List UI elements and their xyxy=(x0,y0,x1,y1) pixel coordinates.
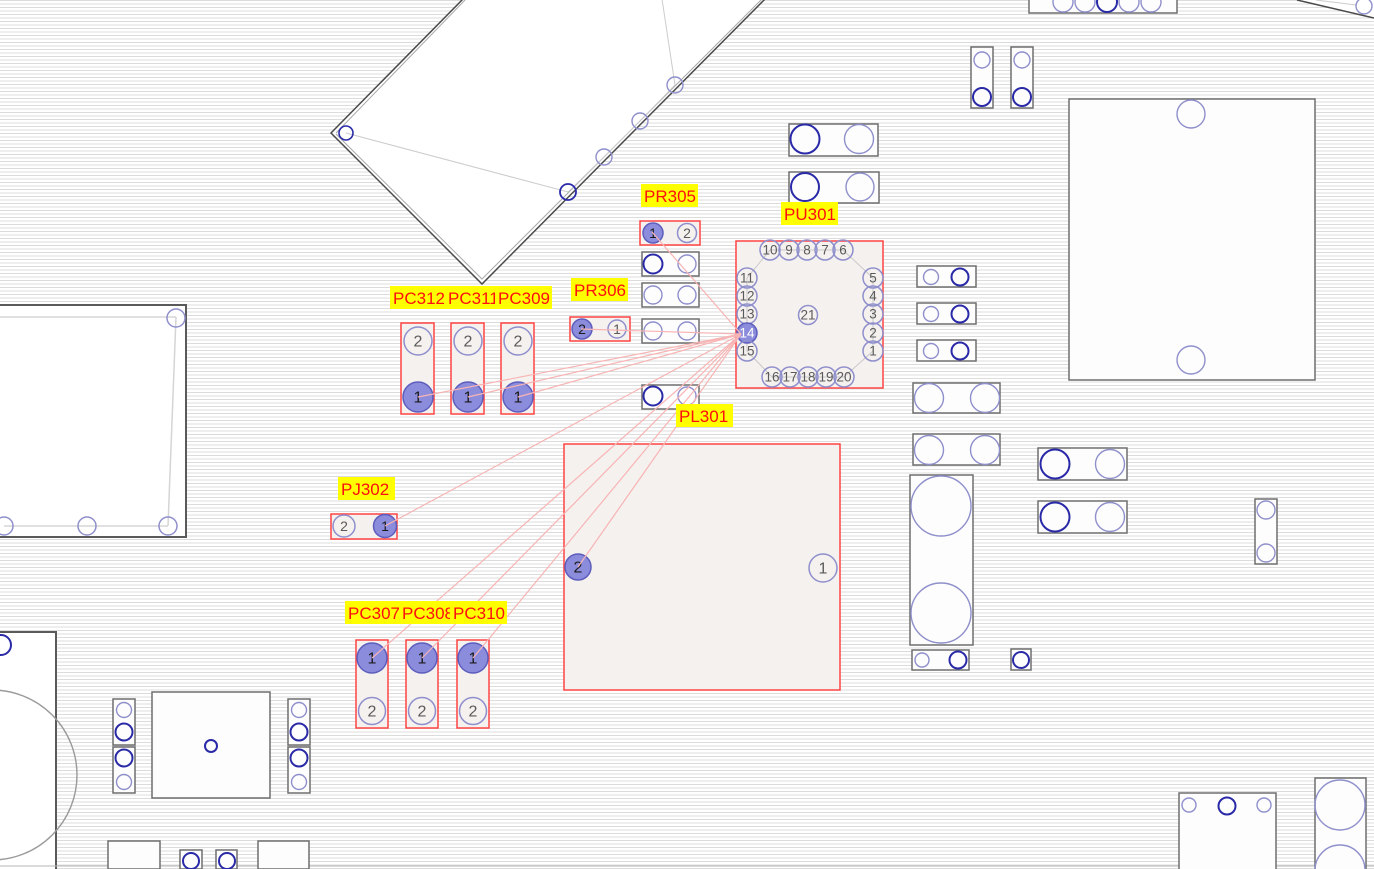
component[interactable] xyxy=(642,252,699,276)
pad-number: 20 xyxy=(836,370,851,385)
component-body[interactable] xyxy=(1038,501,1127,533)
pad-number: 9 xyxy=(785,243,793,258)
component[interactable] xyxy=(113,699,135,745)
component-PR305[interactable]: 12 xyxy=(640,221,700,245)
component[interactable] xyxy=(216,850,237,869)
component[interactable] xyxy=(910,475,973,645)
component-PC309[interactable]: 21 xyxy=(501,323,534,414)
component-body[interactable] xyxy=(288,699,310,745)
label-text: PC312 xyxy=(393,289,445,308)
component[interactable] xyxy=(789,124,878,156)
component-PC311[interactable]: 21 xyxy=(451,323,484,414)
pad-number: 3 xyxy=(869,307,877,322)
pad-number: 7 xyxy=(821,243,829,258)
pad-number: 21 xyxy=(800,308,815,323)
refdes-label-PC311[interactable]: PC311 xyxy=(445,286,502,309)
pad-number: 14 xyxy=(739,326,755,341)
pad-number: 1 xyxy=(613,321,621,337)
component[interactable] xyxy=(258,841,309,869)
component[interactable] xyxy=(1315,778,1366,869)
component-body[interactable] xyxy=(913,383,1000,413)
component-PC312[interactable]: 21 xyxy=(401,323,434,414)
pad-number: 18 xyxy=(800,370,815,385)
pad-number: 2 xyxy=(683,225,691,241)
component[interactable] xyxy=(1029,0,1177,13)
pad-number: 1 xyxy=(869,344,877,359)
label-text: PR306 xyxy=(574,281,626,300)
component-PC307[interactable]: 12 xyxy=(356,640,388,728)
pad-number: 1 xyxy=(514,390,523,407)
component-body[interactable] xyxy=(258,841,309,869)
pad-number: 2 xyxy=(869,326,877,341)
component-body[interactable] xyxy=(113,699,135,745)
label-text: PR305 xyxy=(644,187,696,206)
component-body[interactable] xyxy=(789,124,878,156)
component-body[interactable] xyxy=(1179,793,1276,869)
component-PC310[interactable]: 12 xyxy=(457,640,489,728)
component[interactable] xyxy=(913,434,1000,465)
pad-number: 17 xyxy=(782,370,797,385)
label-text: PL301 xyxy=(679,407,728,426)
component[interactable] xyxy=(180,850,202,869)
pad-number: 1 xyxy=(464,390,473,407)
bottom-left-module-outline xyxy=(0,632,56,869)
component-PC308[interactable]: 12 xyxy=(406,640,438,728)
pad-number: 11 xyxy=(740,271,754,286)
component[interactable] xyxy=(108,841,160,869)
refdes-label-PJ302[interactable]: PJ302 xyxy=(338,477,395,500)
component[interactable] xyxy=(113,747,135,793)
component-body[interactable] xyxy=(152,692,270,798)
pad-number: 8 xyxy=(803,243,811,258)
refdes-label-PC308[interactable]: PC308 xyxy=(399,601,456,624)
component[interactable] xyxy=(912,650,969,670)
label-text: PC309 xyxy=(498,289,550,308)
label-text: PC310 xyxy=(453,604,505,623)
pad-number: 2 xyxy=(464,334,473,351)
pcb-viewport: 1221212121211212122110987611121314155432… xyxy=(0,0,1374,869)
component-body[interactable] xyxy=(1038,448,1127,480)
pad-number: 2 xyxy=(469,704,478,721)
component[interactable] xyxy=(152,692,270,798)
component-body[interactable] xyxy=(1255,499,1277,564)
component-body[interactable] xyxy=(1069,99,1315,380)
component[interactable] xyxy=(1179,793,1276,869)
component[interactable] xyxy=(642,283,699,307)
refdes-label-PU301[interactable]: PU301 xyxy=(781,202,838,225)
pad-number: 4 xyxy=(869,289,877,304)
refdes-label-PC312[interactable]: PC312 xyxy=(390,286,447,309)
component-body[interactable] xyxy=(917,266,976,287)
pad-number: 2 xyxy=(514,334,523,351)
ratsnest-line xyxy=(518,334,741,397)
pad-number: 10 xyxy=(762,243,777,258)
component-body[interactable] xyxy=(564,444,840,690)
refdes-label-PC307[interactable]: PC307 xyxy=(345,601,402,624)
label-text: PU301 xyxy=(784,205,836,224)
pad-number: 1 xyxy=(469,651,478,668)
pad-number: 13 xyxy=(739,307,754,322)
pad-number: 15 xyxy=(739,344,754,359)
pad-number: 2 xyxy=(418,704,427,721)
pad-number: 1 xyxy=(414,390,423,407)
pad-number: 16 xyxy=(764,370,779,385)
component-body[interactable] xyxy=(917,303,976,324)
pad-number: 2 xyxy=(340,518,348,534)
pad-number: 1 xyxy=(418,651,427,668)
component-PU301[interactable]: 109876111213141554321161718192021 xyxy=(736,240,883,388)
pad-number: 5 xyxy=(869,271,877,286)
component-body[interactable] xyxy=(913,434,1000,465)
component[interactable] xyxy=(1011,649,1031,670)
pad-number: 1 xyxy=(368,651,377,668)
component[interactable] xyxy=(917,340,976,361)
refdes-label-PR305[interactable]: PR305 xyxy=(641,184,698,207)
label-text: PJ302 xyxy=(341,480,389,499)
component[interactable] xyxy=(917,266,976,287)
component[interactable] xyxy=(288,699,310,745)
component[interactable] xyxy=(288,747,310,793)
component[interactable] xyxy=(971,47,993,108)
component-body[interactable] xyxy=(789,172,879,203)
component[interactable] xyxy=(1255,499,1277,564)
pad-number: 6 xyxy=(839,243,847,258)
label-text: PC308 xyxy=(402,604,454,623)
refdes-label-PL301[interactable]: PL301 xyxy=(676,404,733,427)
component[interactable] xyxy=(913,383,1000,413)
component-body[interactable] xyxy=(917,340,976,361)
pad-number: 1 xyxy=(819,561,828,578)
pad-number: 2 xyxy=(414,334,423,351)
left-module-outline xyxy=(0,305,186,537)
label-text: PC307 xyxy=(348,604,400,623)
refdes-label-PC310[interactable]: PC310 xyxy=(450,601,507,624)
component[interactable] xyxy=(917,303,976,324)
component[interactable] xyxy=(1011,47,1033,108)
component[interactable] xyxy=(1038,501,1127,533)
label-text: PC311 xyxy=(448,289,499,308)
pad-number: 12 xyxy=(739,289,754,304)
component-body[interactable] xyxy=(910,475,973,645)
component-PL301[interactable]: 21 xyxy=(564,444,840,690)
refdes-label-PC309[interactable]: PC309 xyxy=(495,286,552,309)
component-body[interactable] xyxy=(108,841,160,869)
pad-number: 2 xyxy=(368,704,377,721)
component-PJ302[interactable]: 21 xyxy=(331,514,397,539)
component[interactable] xyxy=(789,172,879,203)
pad-number: 19 xyxy=(818,370,833,385)
refdes-label-PR306[interactable]: PR306 xyxy=(571,278,628,301)
component[interactable] xyxy=(1038,448,1127,480)
component[interactable] xyxy=(1069,99,1315,380)
pcb-canvas: 1221212121211212122110987611121314155432… xyxy=(0,0,1374,869)
